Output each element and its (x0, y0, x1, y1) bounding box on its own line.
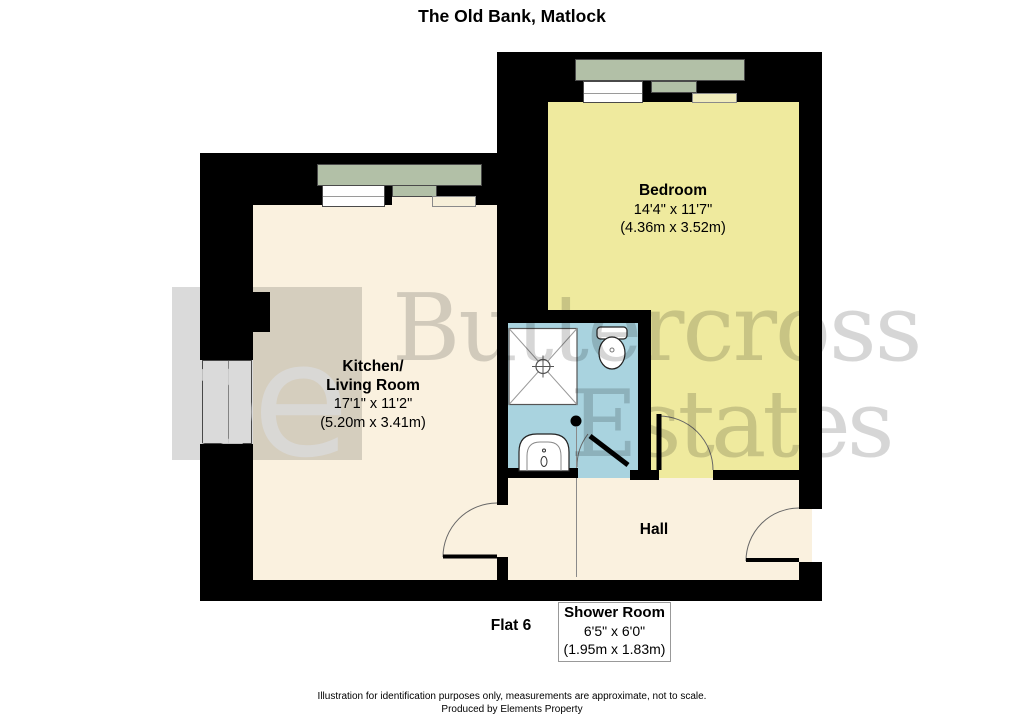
bedroom-dims-imperial: 14'4" x 11'7" (573, 201, 773, 220)
footer-disclaimer: Illustration for identification purposes… (0, 691, 1024, 702)
kitchen-name-line1: Kitchen/ (273, 358, 473, 377)
watermark-wordmark-line2: Estates (570, 378, 891, 471)
kitchen-dims-imperial: 17'1" x 11'2" (273, 395, 473, 414)
footer-credit: Produced by Elements Property (0, 704, 1024, 715)
bedroom-bay-ledge (692, 93, 737, 103)
window-mullion (584, 93, 642, 94)
kitchen-dims-metric: (5.20m x 3.41m) (273, 414, 473, 433)
kitchen-hall-door-opening (497, 505, 508, 557)
floorplan-canvas: The Old Bank, Matlock be (0, 0, 1024, 724)
kitchen-bay-window (317, 164, 482, 186)
bedroom-label: Bedroom 14'4" x 11'7" (4.36m x 3.52m) (573, 182, 773, 238)
wall-kitchen-left-lower (200, 444, 253, 601)
bedroom-bay-step (651, 81, 697, 93)
plan-title: The Old Bank, Matlock (0, 6, 1024, 27)
kitchen-bay-ledge (432, 196, 476, 207)
window-mullion (323, 196, 384, 197)
wall-bottom (200, 580, 822, 601)
hall-label: Hall (604, 521, 704, 540)
kitchen-name-line2: Living Room (273, 377, 473, 396)
bedroom-dims-metric: (4.36m x 3.52m) (573, 219, 773, 238)
wall-shower-bottom (497, 468, 578, 478)
bedroom-name: Bedroom (573, 182, 773, 201)
bedroom-window (583, 81, 643, 103)
shower-room-dims-imperial: 6'5" x 6'0" (559, 622, 670, 640)
hall-right-door-opening (799, 509, 812, 562)
shower-room-callout: Shower Room 6'5" x 6'0" (1.95m x 1.83m) (558, 602, 671, 662)
bedroom-bay-window (575, 59, 745, 81)
kitchen-bay-step (392, 185, 437, 197)
wall-kitchen-right-lower (497, 557, 508, 580)
hall-name: Hall (604, 521, 704, 540)
flat-label: Flat 6 (456, 617, 566, 636)
shower-room-dims-metric: (1.95m x 1.83m) (559, 640, 670, 658)
flat-name: Flat 6 (456, 617, 566, 636)
kitchen-living-room-label: Kitchen/ Living Room 17'1" x 11'2" (5.20… (273, 358, 473, 432)
shower-room-name: Shower Room (559, 604, 670, 622)
kitchen-window (322, 185, 385, 207)
